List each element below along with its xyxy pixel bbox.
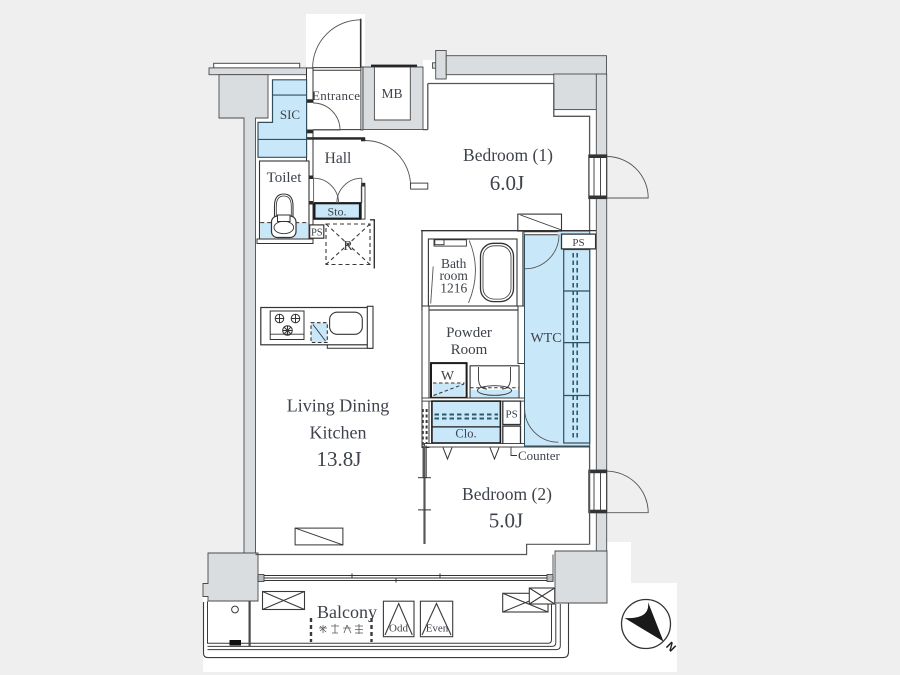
svg-text:5.0J: 5.0J [489,509,523,533]
svg-text:Bedroom (2): Bedroom (2) [462,484,552,504]
svg-text:WTC: WTC [530,331,561,346]
svg-text:MB: MB [381,86,402,101]
svg-text:Powder: Powder [446,325,492,341]
svg-text:W: W [441,369,455,384]
svg-text:Room: Room [451,342,488,358]
svg-text:PS: PS [311,228,323,239]
svg-text:Hall: Hall [325,150,352,167]
svg-text:Toilet: Toilet [267,170,303,186]
svg-text:13.8J: 13.8J [317,447,362,471]
svg-text:Living Dining: Living Dining [287,396,390,416]
svg-text:Kitchen: Kitchen [310,423,367,443]
svg-text:1216: 1216 [440,281,467,296]
svg-text:Sto.: Sto. [327,205,346,219]
svg-text:Bedroom (1): Bedroom (1) [463,145,553,165]
svg-text:Entrance: Entrance [312,88,360,103]
svg-text:SIC: SIC [280,107,300,122]
svg-text:Even: Even [426,623,449,635]
svg-text:Counter: Counter [518,448,561,463]
svg-text:PS: PS [572,237,584,249]
svg-text:PS: PS [505,409,517,421]
svg-text:Odd: Odd [389,623,408,635]
svg-text:Balcony: Balcony [317,602,377,622]
svg-text:R: R [343,239,353,254]
svg-text:Clo.: Clo. [455,427,476,441]
svg-text:6.0J: 6.0J [490,171,524,195]
